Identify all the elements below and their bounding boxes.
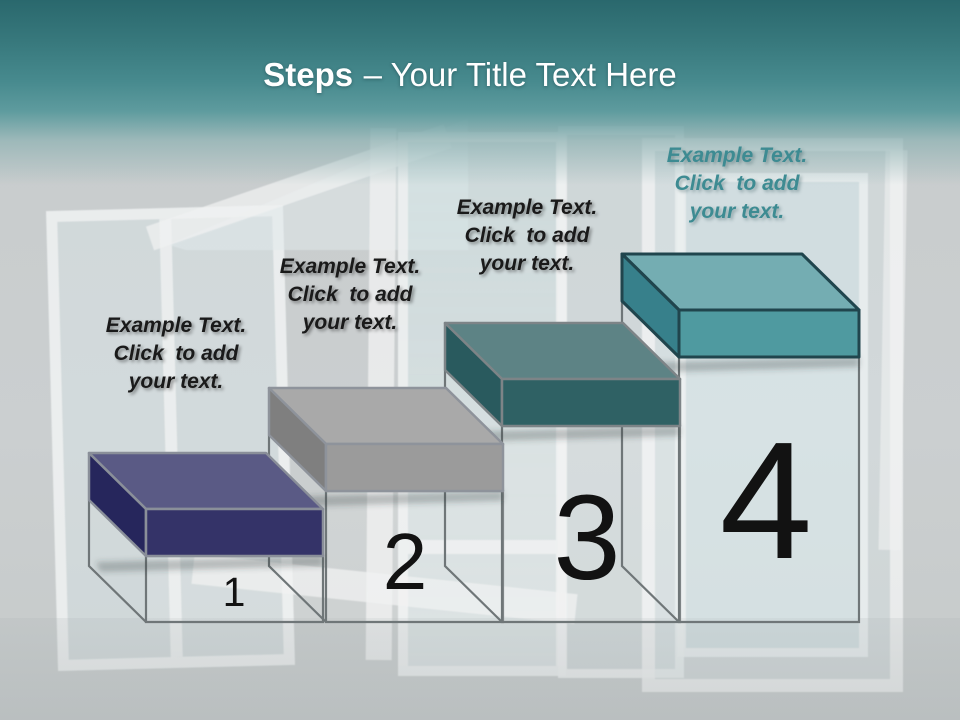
step-2-slab[interactable] xyxy=(269,388,503,491)
label-line: Click to add xyxy=(61,340,291,368)
step-3-number[interactable]: 3 xyxy=(553,469,620,605)
slab-front-face xyxy=(502,379,680,426)
step-4-label[interactable]: Example Text. Click to add your text. xyxy=(622,142,852,226)
slab-front-face xyxy=(679,310,859,357)
step-2-number[interactable]: 2 xyxy=(383,517,428,606)
step-1-number[interactable]: 1 xyxy=(223,569,246,615)
label-line: Example Text. xyxy=(412,194,642,222)
label-line: your text. xyxy=(412,250,642,278)
slab-front-face xyxy=(326,444,503,491)
label-line: Click to add xyxy=(412,222,642,250)
step-3-label[interactable]: Example Text. Click to add your text. xyxy=(412,194,642,278)
step-4-slab[interactable] xyxy=(622,254,859,357)
slab-front-face xyxy=(146,509,323,556)
slide: Steps– Your Title Text Here xyxy=(0,0,960,720)
label-line: your text. xyxy=(61,368,291,396)
step-3-slab[interactable] xyxy=(445,323,680,426)
label-line: your text. xyxy=(622,198,852,226)
label-line: Example Text. xyxy=(622,142,852,170)
label-line: Click to add xyxy=(235,281,465,309)
label-line: your text. xyxy=(235,309,465,337)
step-4-number[interactable]: 4 xyxy=(720,408,813,594)
step-1-slab[interactable] xyxy=(89,453,323,556)
label-line: Click to add xyxy=(622,170,852,198)
